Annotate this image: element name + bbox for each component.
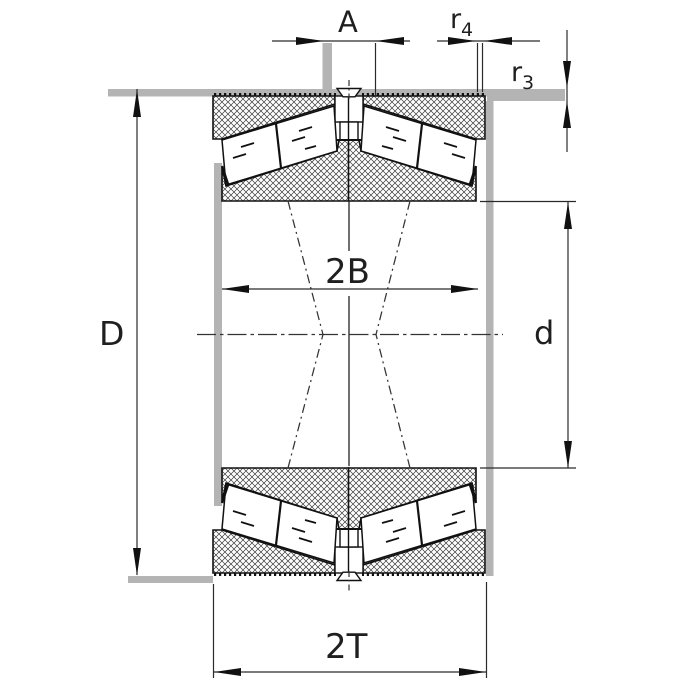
housing-line-bottom-left (128, 576, 213, 583)
label-D: D (99, 314, 124, 353)
abutment-bar-top-center (323, 43, 333, 96)
bearing-cross-section-diagram: A r 4 r 3 D 2B d 2T (0, 0, 680, 680)
bearing-quarter-bottom-left (213, 468, 350, 575)
bearing-quarter-bottom-right (349, 468, 486, 575)
bearing-quarter-top-left (213, 94, 350, 201)
label-d: d (534, 314, 554, 352)
label-2T: 2T (325, 627, 368, 667)
label-A: A (338, 5, 358, 39)
bearing-quarter-top-right (349, 94, 486, 201)
label-r4-subscript: 4 (461, 19, 473, 41)
label-2B: 2B (325, 252, 370, 292)
housing-shoulder-right (486, 101, 494, 576)
bearing-drawing-page: A r 4 r 3 D 2B d 2T (0, 0, 680, 680)
label-r3-subscript: 3 (522, 72, 534, 94)
